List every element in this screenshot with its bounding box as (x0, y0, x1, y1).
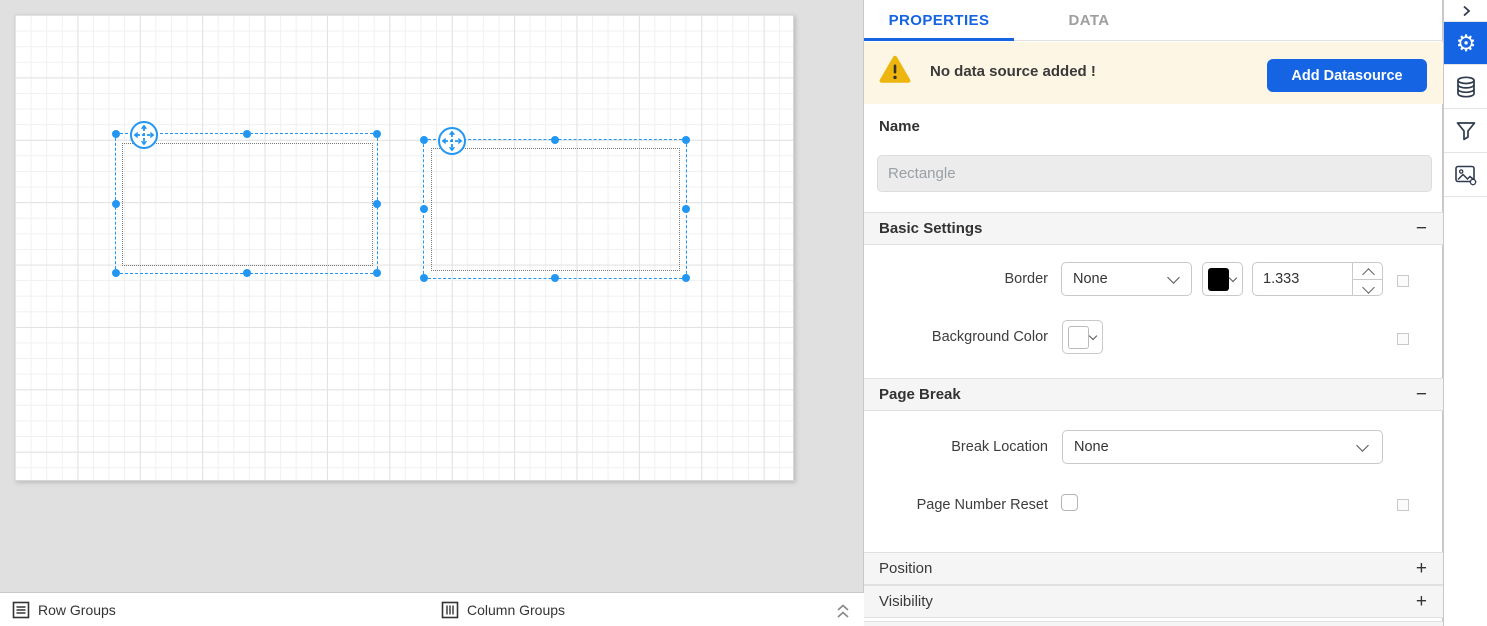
properties-panel: PROPERTIES DATA No data source added ! A… (864, 0, 1443, 626)
collapse-icon[interactable]: − (1416, 218, 1427, 240)
border-width-field (1252, 262, 1383, 296)
break-location-dropdown[interactable]: None (1062, 430, 1383, 464)
rectangle-item-1[interactable] (122, 143, 373, 266)
background-color-swatch (1068, 326, 1089, 349)
section-title: Position (879, 560, 932, 577)
break-location-label: Break Location (864, 439, 1048, 455)
column-groups-label: Column Groups (467, 602, 565, 618)
panel-tabs: PROPERTIES DATA (864, 0, 1443, 41)
resize-handle[interactable] (373, 269, 381, 277)
row-groups-pane[interactable]: Row Groups (12, 593, 116, 626)
groups-bar: Row Groups Column Groups (0, 592, 864, 626)
database-icon (1454, 75, 1478, 99)
resize-handle[interactable] (373, 130, 381, 138)
tab-properties[interactable]: PROPERTIES (864, 0, 1014, 41)
section-title: Basic Settings (879, 220, 982, 237)
datasource-tool-button[interactable] (1444, 65, 1487, 109)
background-color-label: Background Color (864, 329, 1048, 345)
collapse-icon[interactable]: − (1416, 384, 1427, 406)
border-color-swatch (1208, 268, 1229, 291)
resize-handle[interactable] (373, 200, 381, 208)
row-groups-icon (12, 601, 30, 619)
chevron-down-icon (1229, 274, 1237, 282)
resize-handle[interactable] (420, 205, 428, 213)
chevron-down-icon (1089, 332, 1097, 340)
border-row-checkbox[interactable] (1397, 275, 1409, 287)
resize-handle[interactable] (243, 269, 251, 277)
no-datasource-banner: No data source added ! Add Datasource (864, 42, 1443, 104)
active-tab-underline (864, 38, 1014, 41)
resize-handle[interactable] (112, 269, 120, 277)
gear-icon: ⚙ (1456, 32, 1477, 55)
banner-message: No data source added ! (930, 63, 1096, 80)
name-input[interactable] (877, 155, 1432, 192)
border-style-dropdown[interactable]: None (1061, 262, 1192, 296)
properties-tool-button[interactable]: ⚙ (1444, 22, 1487, 65)
filter-tool-button[interactable] (1444, 109, 1487, 153)
next-section-edge (864, 621, 1443, 626)
section-position[interactable]: Position + (864, 552, 1443, 585)
page-number-reset-row-checkbox[interactable] (1397, 499, 1409, 511)
collapse-panel-button[interactable] (1444, 0, 1487, 22)
break-location-value: None (1074, 439, 1109, 455)
page-number-reset-label: Page Number Reset (864, 497, 1048, 513)
expand-icon[interactable]: + (1416, 591, 1427, 613)
border-width-input[interactable] (1253, 263, 1351, 295)
resize-handle[interactable] (682, 136, 690, 144)
image-settings-icon (1453, 162, 1479, 188)
resize-handle[interactable] (682, 205, 690, 213)
resize-handle[interactable] (112, 200, 120, 208)
resize-handle[interactable] (551, 136, 559, 144)
resize-handle[interactable] (420, 274, 428, 282)
background-row-checkbox[interactable] (1397, 333, 1409, 345)
move-icon[interactable] (129, 120, 159, 150)
spinner-down-icon[interactable] (1353, 279, 1383, 295)
column-groups-pane[interactable]: Column Groups (441, 593, 565, 626)
rectangle-item-2-selection[interactable] (423, 139, 687, 279)
move-icon[interactable] (437, 126, 467, 156)
name-label: Name (879, 118, 920, 135)
resize-handle[interactable] (420, 136, 428, 144)
border-style-value: None (1073, 271, 1108, 287)
expand-icon[interactable]: + (1416, 558, 1427, 580)
tab-data[interactable]: DATA (1014, 0, 1164, 41)
background-color-picker[interactable] (1062, 320, 1103, 354)
resize-handle[interactable] (682, 274, 690, 282)
section-page-break[interactable]: Page Break − (864, 378, 1443, 411)
resize-handle[interactable] (112, 130, 120, 138)
spinner-up-icon[interactable] (1353, 263, 1383, 279)
section-visibility[interactable]: Visibility + (864, 585, 1443, 618)
rectangle-item-2[interactable] (431, 148, 680, 271)
column-groups-icon (441, 601, 459, 619)
add-datasource-button[interactable]: Add Datasource (1267, 59, 1427, 92)
chevron-down-icon (1356, 439, 1369, 452)
report-designer-window: Row Groups Column Groups PROPERTIES DATA (0, 0, 1487, 626)
resize-handle[interactable] (243, 130, 251, 138)
collapse-groups-bar-icon[interactable] (836, 602, 850, 619)
border-color-picker[interactable] (1202, 262, 1243, 296)
design-canvas[interactable]: Row Groups Column Groups (0, 0, 864, 626)
filter-icon (1454, 119, 1478, 143)
image-settings-tool-button[interactable] (1444, 153, 1487, 197)
chevron-right-icon (1460, 5, 1472, 17)
section-title: Page Break (879, 386, 961, 403)
section-basic-settings[interactable]: Basic Settings − (864, 212, 1443, 245)
section-title: Visibility (879, 593, 933, 610)
side-toolbar: ⚙ (1443, 0, 1487, 626)
page-number-reset-checkbox[interactable] (1061, 494, 1078, 511)
border-label: Border (864, 271, 1048, 287)
warning-icon (878, 54, 912, 86)
rectangle-item-1-selection[interactable] (115, 133, 378, 274)
row-groups-label: Row Groups (38, 602, 116, 618)
chevron-down-icon (1167, 271, 1180, 284)
resize-handle[interactable] (551, 274, 559, 282)
border-width-spinner (1352, 263, 1382, 295)
